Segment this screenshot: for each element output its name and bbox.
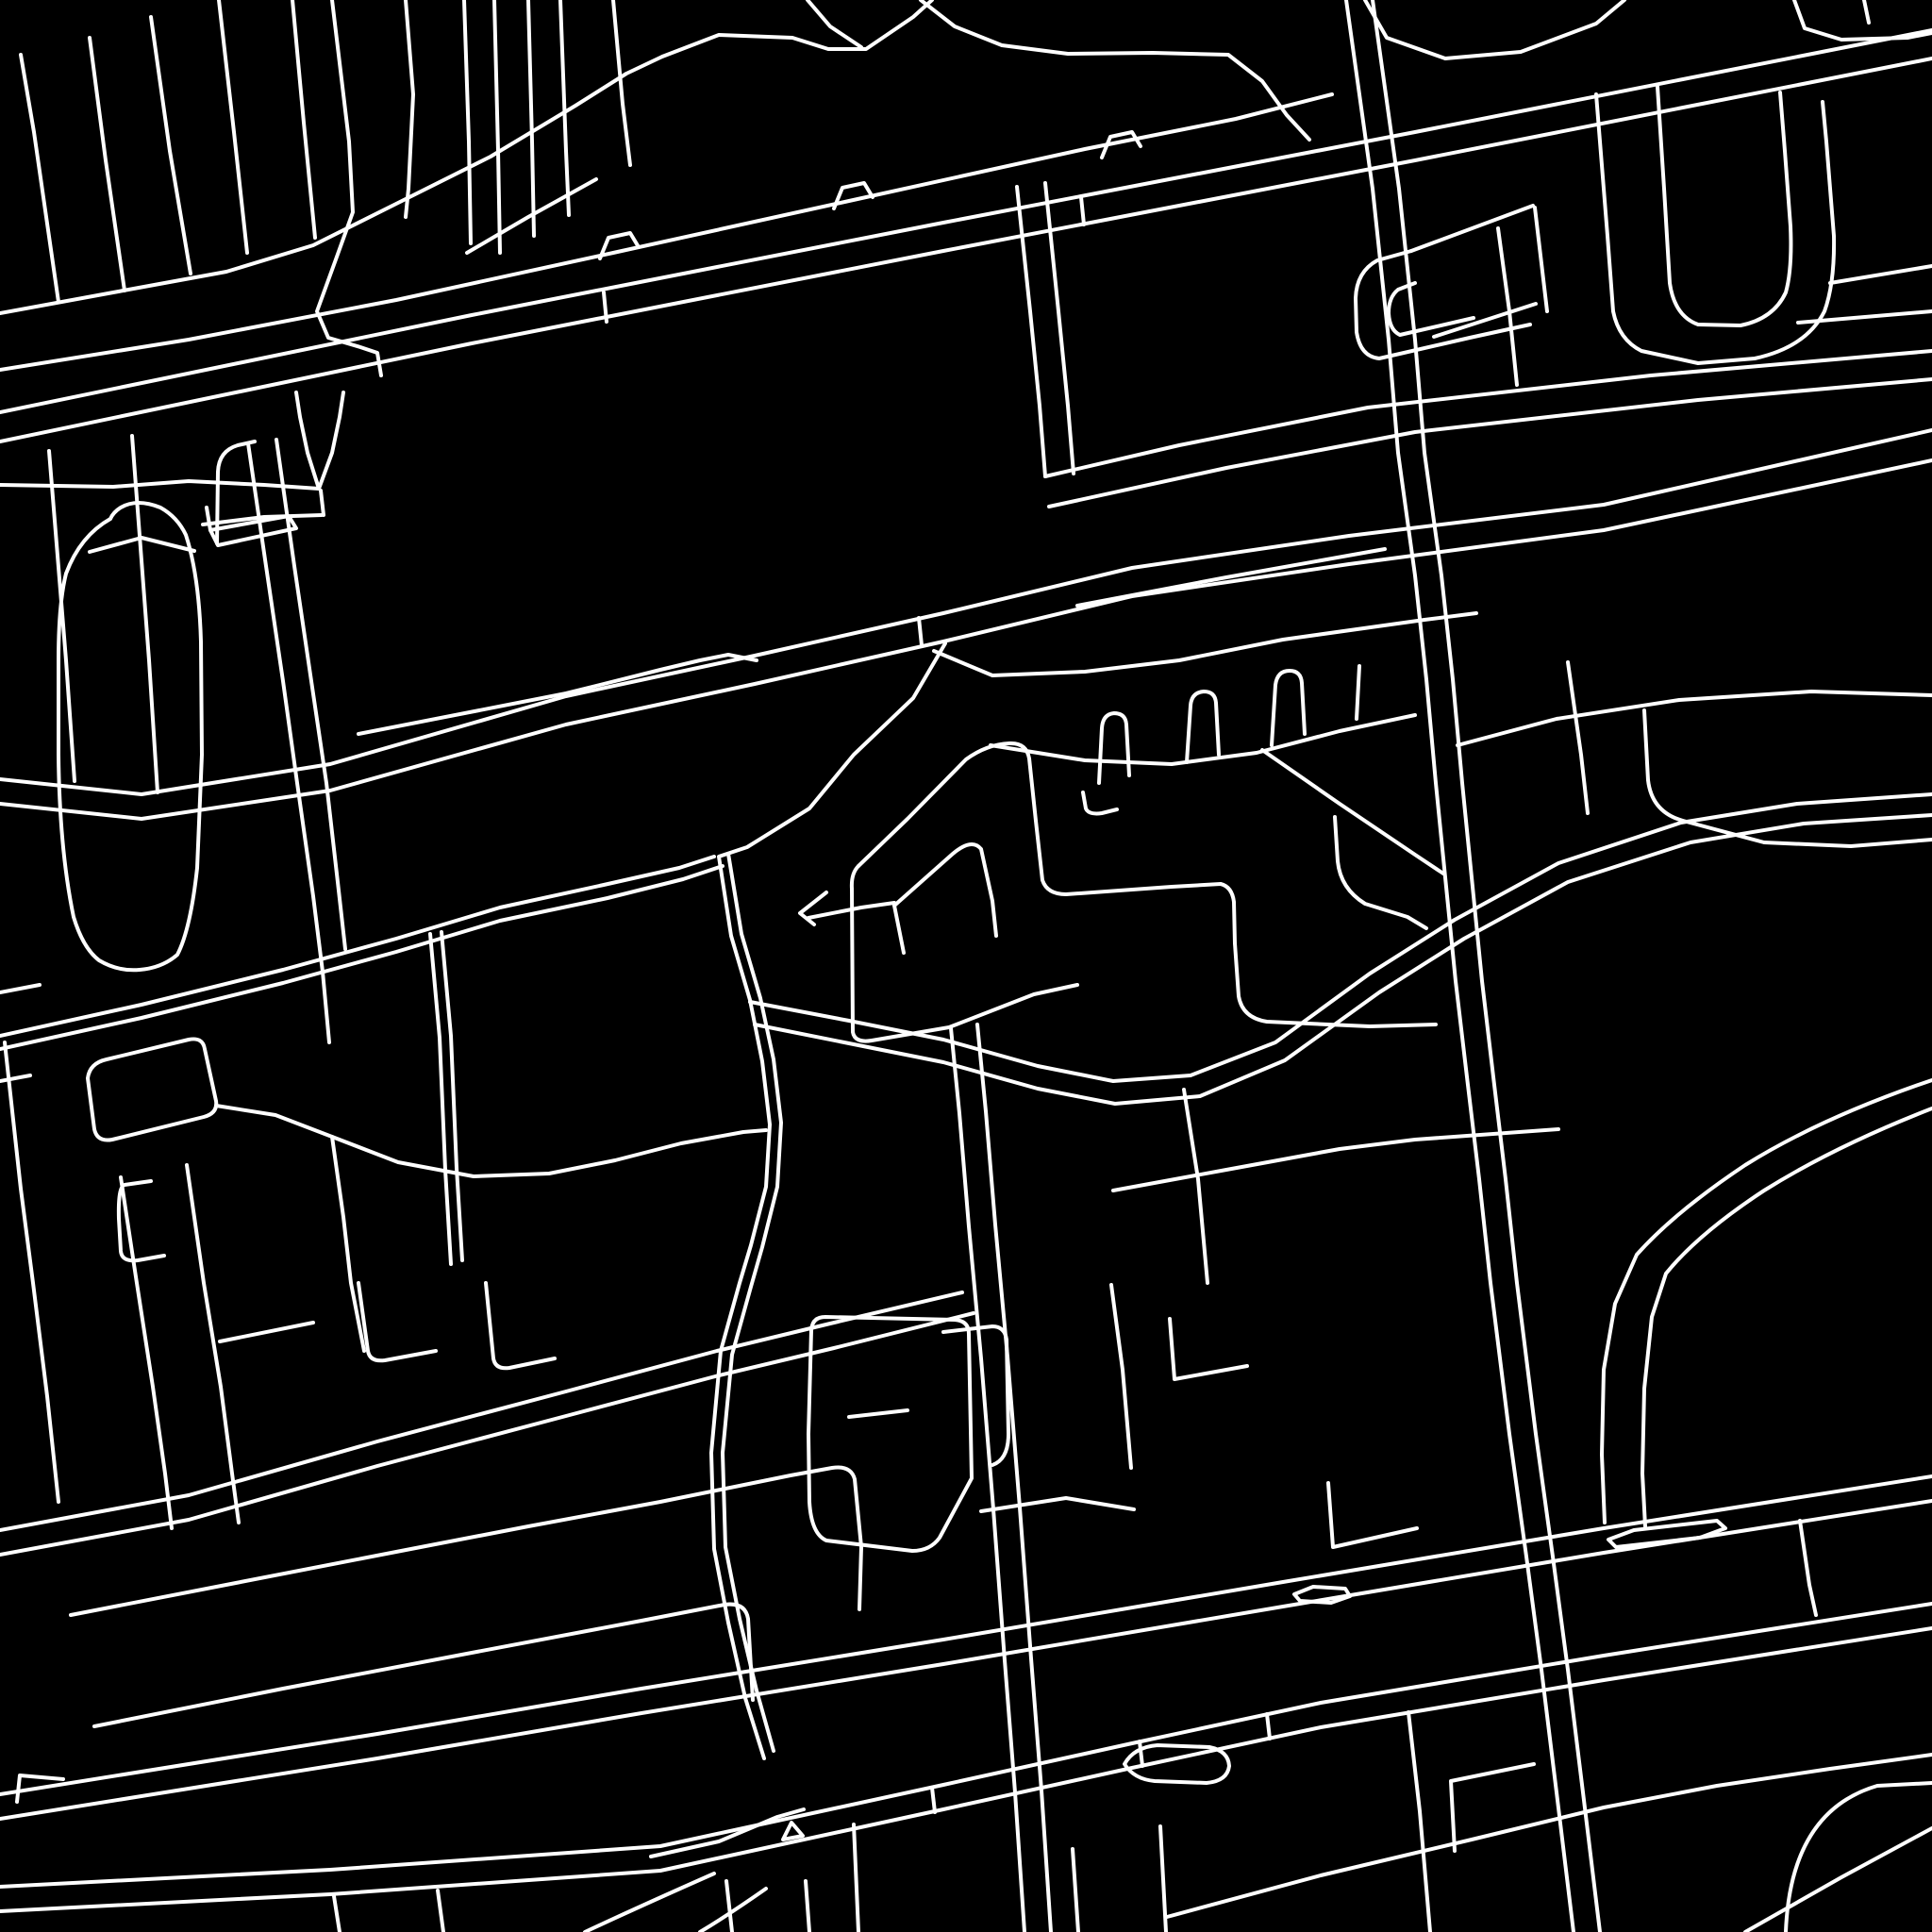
road-arterial-a4-upper: [0, 1604, 1932, 1887]
road-a4-median-3: [1267, 1714, 1270, 1739]
road-a1-median-stub-2: [1081, 197, 1084, 225]
road-swoosh-2: [1642, 1108, 1932, 1526]
road-u-loop-inner: [1657, 87, 1790, 325]
road-vert-e2: [441, 932, 462, 1260]
road-comb-tooth-s: [317, 0, 381, 375]
road-hook-hk1: [1328, 1483, 1417, 1547]
road-maze-outer-north: [858, 743, 1235, 943]
road-vert-r11: [1184, 1090, 1207, 1283]
road-corner-br: [1745, 1828, 1932, 1932]
road-arterial-a2r-upper: [1045, 351, 1932, 476]
road-vert-vl1: [121, 1177, 172, 1528]
road-street-s1: [1411, 206, 1533, 251]
road-arterial-a5-lower: [0, 1501, 1932, 1819]
road-arterial-v1-right: [1373, 0, 1600, 1932]
road-balloon: [783, 1823, 803, 1840]
road-vert-h: [1800, 1521, 1816, 1615]
road-claw-road: [216, 1106, 766, 1176]
road-block-vert-1: [1498, 228, 1517, 385]
road-hairpin-1: [1099, 713, 1129, 783]
road-comb-tooth-1: [21, 55, 58, 302]
map-viewport[interactable]: [0, 0, 1932, 1932]
road-a4-median-1: [932, 1788, 935, 1812]
road-hook-hk3: [1170, 1319, 1247, 1379]
road-a4-median-2: [1140, 1741, 1142, 1766]
road-vert-f: [1568, 662, 1588, 813]
road-se-corner-2: [1235, 943, 1436, 1026]
road-arterial-a3-lower: [755, 815, 1932, 1104]
road-maze-inner-leg: [894, 906, 904, 953]
road-wavy-road-w1: [662, 0, 932, 57]
road-stub-3: [334, 1896, 340, 1932]
road-vert-left-1: [49, 451, 75, 781]
road-edge-stub-2: [0, 1075, 30, 1081]
road-frontage-f1: [0, 481, 319, 489]
road-stub-7: [1160, 1826, 1166, 1932]
road-street-s2: [1434, 304, 1536, 337]
road-comb-tooth-10: [560, 0, 569, 215]
road-median-island-1: [1294, 1587, 1350, 1603]
road-comb-tooth-6: [406, 0, 413, 217]
road-stub-4: [438, 1890, 443, 1932]
roads-layer: [0, 0, 1932, 1932]
road-hook-hk4: [1111, 1285, 1131, 1468]
road-ne-corner-stub: [1864, 0, 1869, 23]
road-corner-rc3: [1786, 1783, 1932, 1932]
road-street-l1: [220, 1323, 313, 1341]
road-wavy-road-w2: [921, 0, 1309, 140]
road-arterial-a3-upper: [750, 794, 1932, 1081]
road-comb-tooth-9: [528, 0, 534, 236]
road-collector-c1-partner: [723, 854, 781, 1751]
road-maze-outer-west: [852, 866, 1077, 1041]
road-road-rmt: [991, 715, 1415, 764]
road-pentagon-tick: [849, 1410, 908, 1417]
road-hairpin-2: [1187, 691, 1219, 762]
road-ramp-1: [585, 1874, 714, 1932]
road-comb-tooth-2: [90, 38, 125, 291]
road-street-r8: [1457, 691, 1932, 745]
road-vert-left-2: [132, 436, 158, 792]
road-comb-tooth-4: [219, 0, 247, 253]
road-edge-stub-1: [0, 985, 40, 992]
road-a2-median-stub: [919, 618, 922, 645]
road-collector-r5b: [0, 866, 723, 1049]
road-parallelogram-stem: [207, 508, 210, 530]
road-pentagon-hook: [943, 1326, 1008, 1465]
road-collector-c2-left: [951, 1028, 1024, 1932]
road-pentagon-loop: [808, 1317, 972, 1551]
road-wavy-road-w3: [1365, 0, 1624, 58]
road-claw-loop: [88, 1039, 216, 1140]
road-arterial-a4-lower: [0, 1628, 1932, 1911]
road-vert-g: [1408, 1712, 1430, 1932]
road-oval-stem: [321, 491, 324, 515]
road-arterial-a1-lower: [0, 58, 1932, 441]
road-collector-c1-main: [711, 643, 945, 1758]
road-chevron: [800, 892, 826, 924]
road-vert-vl0: [5, 1042, 58, 1502]
road-wavy-r6: [71, 1468, 861, 1616]
road-v3-upper-left: [1017, 187, 1045, 476]
road-vert-vl2: [187, 1165, 239, 1523]
road-arterial-a2-lower: [0, 460, 1932, 819]
road-stub-5: [854, 1824, 858, 1932]
road-hook-hk2: [1451, 1764, 1534, 1851]
road-stub-2: [806, 1881, 809, 1932]
road-block-vert-2: [1535, 208, 1547, 311]
road-diag-se: [1262, 750, 1443, 874]
road-street-r11: [1113, 1129, 1558, 1191]
road-wavy-r7: [94, 1605, 753, 1726]
road-comb-tooth-7: [464, 0, 471, 243]
road-hairpin-3: [1272, 671, 1305, 745]
road-wavy-road-w1-branch: [808, 0, 861, 47]
road-maze-inner: [894, 844, 996, 936]
road-collector-r5a: [0, 857, 714, 1036]
road-oval-outline: [58, 503, 202, 970]
road-map-canvas: [0, 0, 1932, 1932]
road-lambda-right: [319, 392, 343, 489]
road-comb-tooth-3: [151, 17, 191, 274]
road-stub-1: [726, 1881, 732, 1932]
road-hook-l2: [486, 1283, 555, 1368]
road-swoosh-1: [1602, 1080, 1932, 1523]
road-comb-tooth-5: [292, 0, 315, 238]
road-street-m1: [981, 1498, 1134, 1511]
road-maze-hook: [1083, 792, 1117, 813]
road-driveway-bump-3: [1102, 132, 1141, 158]
road-lambda-left: [296, 392, 319, 489]
road-u-exit-1: [1830, 266, 1932, 283]
road-u-exit-2: [1798, 311, 1932, 323]
road-arterial-a1-upper: [0, 30, 1932, 412]
road-comb-tooth-11: [613, 0, 630, 165]
road-tooth-single: [1357, 666, 1359, 719]
road-comb-tooth-8: [494, 0, 500, 253]
road-stub-6: [1073, 1849, 1078, 1932]
road-hook-l1: [358, 1283, 436, 1360]
road-arterial-a5-upper: [0, 1476, 1932, 1794]
road-vert-d: [332, 1137, 364, 1351]
